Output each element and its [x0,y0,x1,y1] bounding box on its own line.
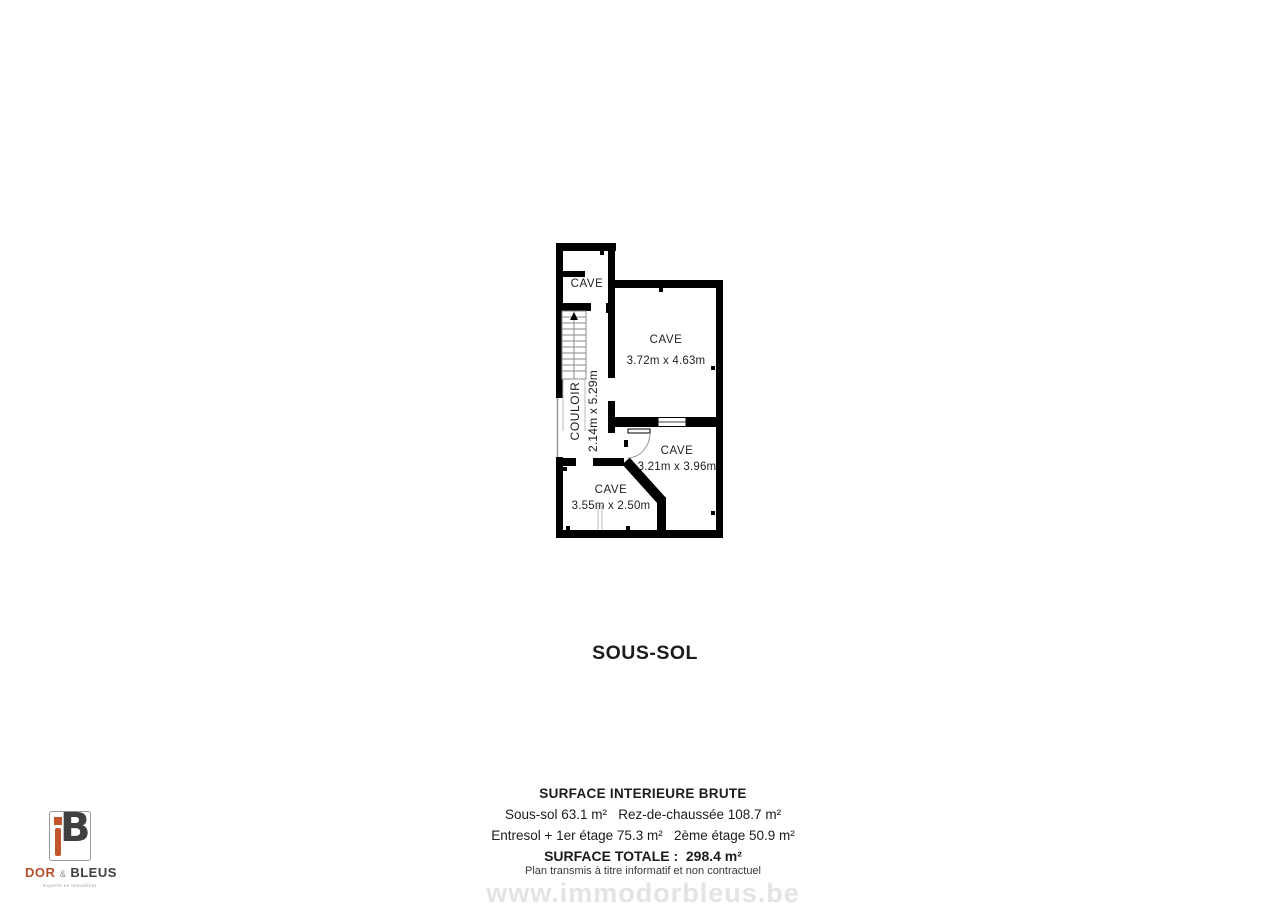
disclaimer-text: Plan transmis à titre informatif et non … [373,865,913,877]
room-dimensions: 3.72m x 4.63m [615,355,717,367]
logo-ampersand: & [60,869,66,879]
surface-line-2: Entresol + 1er étage 75.3 m² 2ème étage … [373,828,913,843]
room-dimensions: 3.21m x 3.96m [627,461,727,473]
room-label-cave-mid: CAVE 3.21m x 3.96m [627,445,727,473]
room-dimensions: 3.55m x 2.50m [561,500,661,512]
window [658,418,686,427]
surface-total: SURFACE TOTALE : 298.4 m² [373,848,913,864]
logo-tagline: Experts en immobilier [25,883,115,888]
surface-line-1: Sous-sol 63.1 m² Rez-de-chaussée 108.7 m… [373,807,913,822]
room-name: CAVE [561,484,661,496]
room-dimensions: 2.14m x 5.29m [584,345,602,477]
logo-word-bleus: BLEUS [70,865,117,880]
room-label-cave-large: CAVE 3.72m x 4.63m [615,334,717,367]
website-watermark: www.immodorbleus.be [373,878,913,904]
room-name: CAVE [615,334,717,346]
floor-title: SOUS-SOL [495,642,795,665]
room-label-couloir: COULOIR 2.14m x 5.29m [566,345,604,477]
room-name: CAVE [627,445,727,457]
room-name: CAVE [556,278,618,290]
surface-heading: SURFACE INTERIEURE BRUTE [373,786,913,801]
agency-logo: B DOR & BLEUS Experts en immobilier [25,811,115,888]
logo-name: DOR & BLEUS [25,864,115,882]
room-name: COULOIR [566,345,584,477]
logo-b-monogram: B [60,805,91,851]
surface-summary: SURFACE INTERIEURE BRUTE Sous-sol 63.1 m… [373,786,913,904]
room-label-cave-small: CAVE 3.55m x 2.50m [561,484,661,512]
logo-monogram-box: B [49,811,91,861]
floor-plan-page: CAVE CAVE 3.72m x 4.63m COULOIR 2.14m x … [0,0,1280,904]
room-label-cave-top: CAVE [556,278,618,290]
logo-word-dor: DOR [25,865,55,880]
